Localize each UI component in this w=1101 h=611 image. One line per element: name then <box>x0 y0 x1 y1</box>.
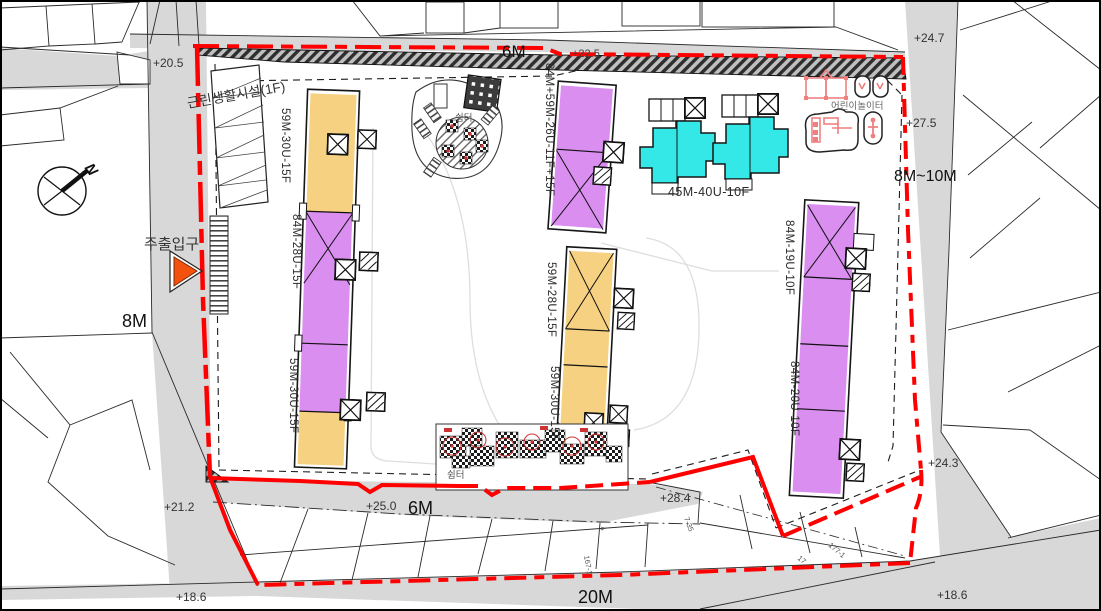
playground-label: 어린이놀이터 <box>831 101 883 112</box>
site-plan-drawing: N 근린생활시설(1F) 주출입구 쉼터 쉼터 어린이놀이터 59M-30U-1… <box>0 0 1101 611</box>
parcel-number-3: 177-1 <box>827 541 847 560</box>
elevation-south-mid: +28.4 <box>660 491 691 505</box>
elevation-se: +18.6 <box>937 588 968 602</box>
shelter-bottom-label: 쉼터 <box>447 470 464 481</box>
north-compass: N <box>38 160 102 215</box>
play-structure-icon <box>806 109 859 152</box>
building-label-5: 59M-28U-15F <box>545 262 557 337</box>
parcel-number-4: 17 <box>796 554 808 566</box>
building-label-1: 84M-28U-15F <box>290 214 302 289</box>
elevation-nw: +20.5 <box>153 56 184 70</box>
elevation-6m-west: +25.0 <box>366 499 397 513</box>
elevation-east-upper: +27.5 <box>906 116 937 130</box>
road-west-label: 8M <box>122 311 147 331</box>
building-center-top-slab <box>548 81 628 234</box>
pergola-trellis <box>464 75 501 112</box>
north-label: N <box>81 160 102 180</box>
building-label-7: 84M-19U-10F <box>783 220 795 295</box>
building-label-6: 59M-30U-15F <box>548 366 560 441</box>
parcel-number-2: 7-35 <box>682 516 696 533</box>
building-left-slab <box>290 89 395 470</box>
entrance-label: 주출입구 <box>144 236 199 253</box>
site-plan-canvas: N 근린생활시설(1F) 주출입구 쉼터 쉼터 어린이놀이터 59M-30U-1… <box>0 0 1101 611</box>
elevation-east-lower: +24.3 <box>928 456 959 470</box>
building-label-3: 84M+59M-26U-11F+15F <box>543 63 555 196</box>
shelter-top-label: 쉼터 <box>455 113 472 124</box>
road-south-label: 20M <box>578 587 613 607</box>
parcel-number-1: 167-1 <box>582 555 594 575</box>
building-right-slab <box>789 200 878 499</box>
building-label-8: 84M-20U-10F <box>788 361 800 436</box>
road-east-label: 8M~10M <box>894 168 957 185</box>
elevation-sw: +18.6 <box>176 590 207 604</box>
building-label-2: 59M-30U-15F <box>287 358 299 433</box>
shelter-top-area <box>412 75 502 178</box>
road-top-label: 6M <box>502 42 526 61</box>
stair-ramp <box>210 216 228 314</box>
seesaw-icon <box>864 112 882 144</box>
elevation-sw-road: +21.2 <box>164 500 195 514</box>
elevation-top-mid: +22.5 <box>572 48 600 60</box>
building-cyan-45m <box>640 94 788 194</box>
building-label-4: 45M-40U-10F <box>668 185 750 199</box>
elevation-ne: +24.7 <box>914 31 945 45</box>
building-label-0: 59M-30U-15F <box>279 108 291 183</box>
parcel-number-0: 4 <box>598 525 608 531</box>
spring-rider-icons <box>855 76 888 97</box>
road-mid-south-label: 6M <box>408 498 433 518</box>
shelter-bottom-area <box>436 424 628 490</box>
